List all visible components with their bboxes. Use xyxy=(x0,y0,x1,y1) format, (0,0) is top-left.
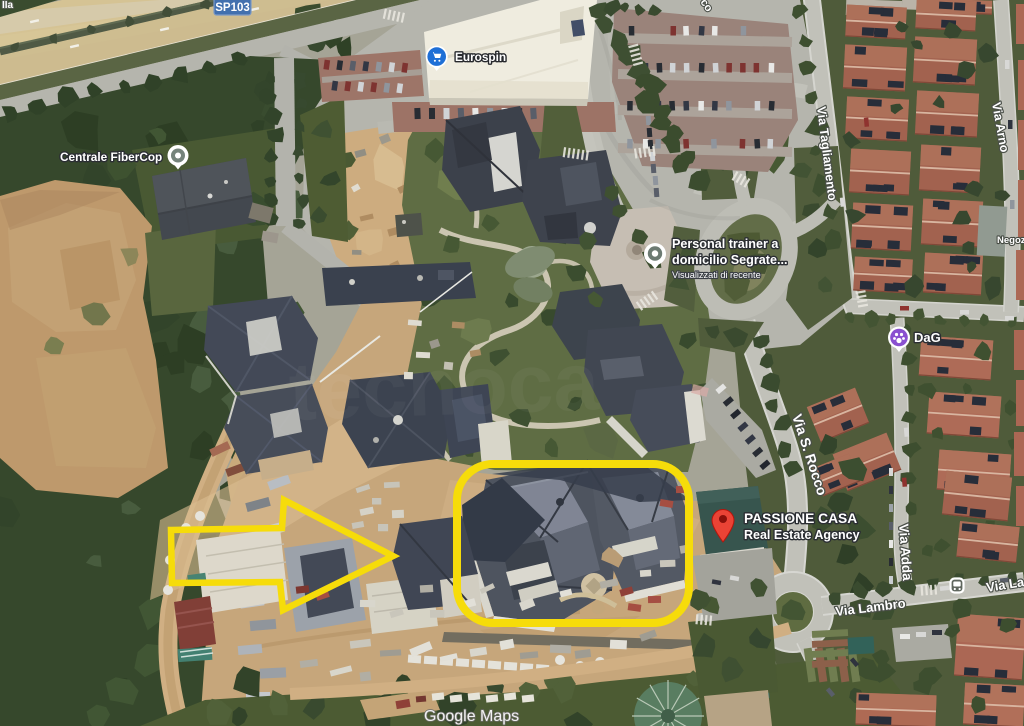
svg-text:Google Maps: Google Maps xyxy=(424,708,519,725)
svg-text:Centrale FiberCop: Centrale FiberCop xyxy=(60,150,162,164)
svg-text:Eurospin: Eurospin xyxy=(455,50,506,64)
svg-text:domicilio Segrate...: domicilio Segrate... xyxy=(672,253,787,267)
svg-text:Personal trainer a: Personal trainer a xyxy=(672,237,779,251)
svg-text:Negozi: Negozi xyxy=(997,235,1024,246)
svg-text:PASSIONE CASA: PASSIONE CASA xyxy=(744,511,857,526)
svg-text:Visualizzati di recente: Visualizzati di recente xyxy=(672,270,761,280)
svg-text:IIa: IIa xyxy=(2,0,14,11)
svg-text:SP103: SP103 xyxy=(215,2,250,14)
svg-text:Real Estate Agency: Real Estate Agency xyxy=(744,528,860,542)
svg-text:DaG: DaG xyxy=(914,330,941,345)
